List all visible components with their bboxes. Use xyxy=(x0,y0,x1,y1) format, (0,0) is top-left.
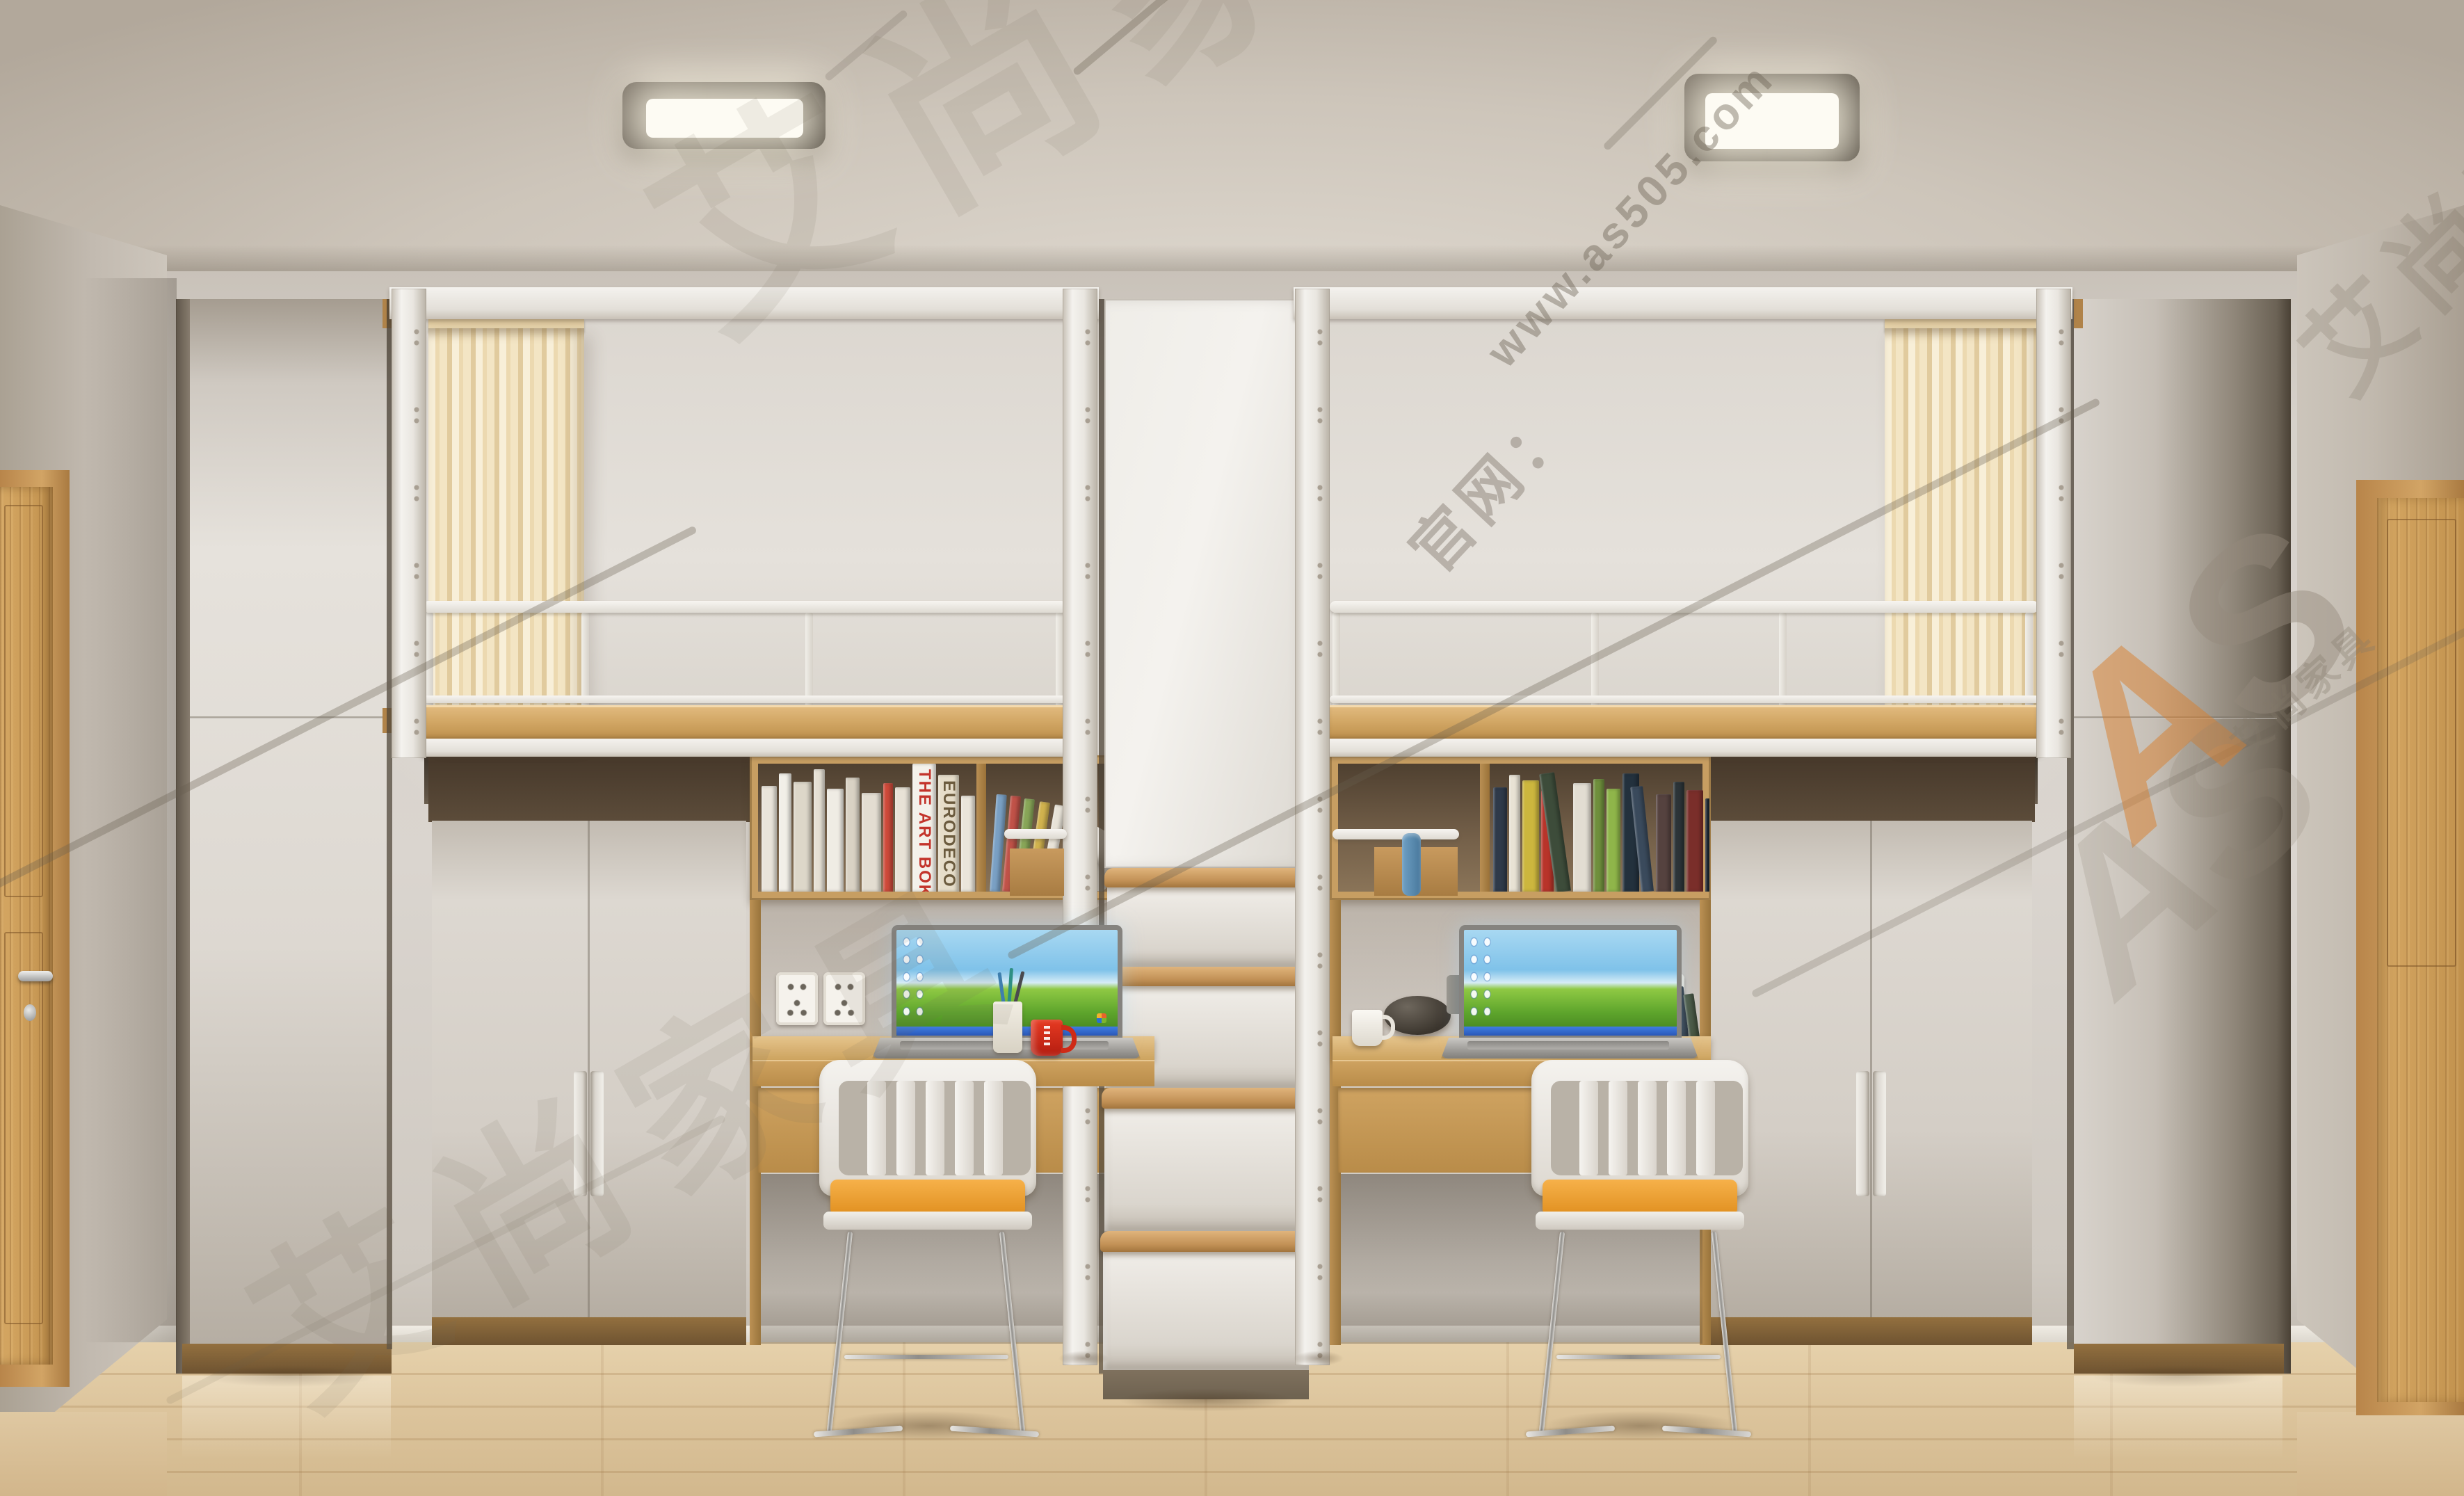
hutch-divider xyxy=(1480,764,1490,892)
gap xyxy=(1099,299,1104,1374)
book-spine xyxy=(1522,780,1539,892)
right-bookshelf-main xyxy=(1490,764,1709,892)
right-bed-post-outer xyxy=(2036,289,2071,758)
right-bed-curtain xyxy=(1885,328,2040,740)
ladder-step-nosing xyxy=(1104,868,1307,887)
door-panel-groove xyxy=(2387,519,2456,967)
pen-cup xyxy=(993,1002,1022,1053)
chair-seat-edge xyxy=(1536,1212,1744,1230)
light-panel xyxy=(646,99,803,138)
hutch-divider xyxy=(976,764,986,892)
wallpaper-logo xyxy=(1097,1013,1106,1023)
chair-slat xyxy=(955,1081,974,1175)
book-spine xyxy=(1573,783,1591,892)
left-bed-top-beam xyxy=(389,287,1099,319)
wardrobe-door-seam xyxy=(588,821,590,1319)
right-bed-guardrail-bottom xyxy=(1330,695,2039,703)
chair-seat-edge xyxy=(823,1212,1032,1230)
left-bed-curtain xyxy=(428,328,584,740)
right-bed-end-rail xyxy=(1332,829,1459,839)
wardrobe-handle xyxy=(1856,1071,1869,1196)
power-outlet xyxy=(823,972,865,1025)
book-spine xyxy=(895,787,910,892)
book-spine xyxy=(1593,779,1604,892)
wardrobe-door-seam xyxy=(2074,716,2277,718)
ceiling-light-right xyxy=(1684,74,1860,161)
right-bed-top-beam xyxy=(1294,287,2072,319)
laptop-screen xyxy=(1459,925,1682,1043)
wardrobe-handle xyxy=(1873,1071,1886,1196)
right-underbed-wardrobe xyxy=(1711,821,2032,1319)
chair-sled-foot xyxy=(1662,1426,1751,1438)
rail-post xyxy=(581,612,589,709)
chair-slat xyxy=(1667,1081,1686,1175)
dorm-room-render: THE ART BOKEURODECO xyxy=(0,0,2464,1496)
left-bed-fascia xyxy=(421,705,1067,741)
shadow xyxy=(1284,1348,1353,1369)
white-mug xyxy=(1352,1010,1383,1046)
left-underbed-header xyxy=(428,755,750,822)
ladder-step-front xyxy=(1103,1252,1309,1370)
rail-post xyxy=(1779,612,1787,709)
chair-leg xyxy=(999,1231,1025,1432)
left-tall-wardrobe xyxy=(190,299,392,1344)
floor-reflection xyxy=(182,1376,391,1459)
left-underbed-plinth xyxy=(432,1317,746,1345)
blue-roll xyxy=(1402,833,1421,896)
shadow xyxy=(1085,1384,1328,1416)
left-bed-guardrail-bottom xyxy=(423,695,1067,703)
book-spine: THE ART BOK xyxy=(912,764,936,892)
ceiling-wall-shadow xyxy=(0,245,2464,273)
right-tall-wardrobe xyxy=(2074,299,2277,1344)
chair-leg xyxy=(1712,1231,1737,1432)
wall-shadow xyxy=(83,278,177,1342)
wardrobe-handle xyxy=(590,1071,604,1196)
right-tall-wardrobe-side xyxy=(2277,299,2291,1374)
left-bookshelf-main: THE ART BOKEURODECO xyxy=(758,764,985,892)
chair xyxy=(1520,1060,1757,1439)
chair-slat xyxy=(984,1081,1003,1175)
red-mug xyxy=(1031,1020,1063,1056)
rail-post xyxy=(1591,612,1599,709)
chair-slat xyxy=(1638,1081,1657,1175)
right-underbed-plinth xyxy=(1711,1317,2032,1345)
left-bed-end-board xyxy=(1010,848,1064,896)
book-spine xyxy=(862,793,881,892)
wardrobe-handle xyxy=(574,1071,587,1196)
chair-leg xyxy=(1539,1231,1565,1432)
laptop-taskbar xyxy=(1464,1027,1677,1036)
book-spine xyxy=(814,769,825,892)
book-spine xyxy=(1607,789,1620,892)
book-spine xyxy=(794,782,812,892)
ceiling xyxy=(0,0,2464,273)
chair-slat xyxy=(867,1081,886,1175)
right-bed-fascia xyxy=(1327,705,2039,741)
desktop-icons xyxy=(900,933,928,1015)
book-spine xyxy=(846,778,860,892)
ceiling-light-left xyxy=(622,82,826,149)
chair-slat xyxy=(1579,1081,1598,1175)
book-spine xyxy=(827,789,844,892)
left-wall-floor xyxy=(0,1412,167,1496)
chair-slat xyxy=(926,1081,944,1175)
chair-slat xyxy=(1609,1081,1627,1175)
ladder-step-front xyxy=(1104,1109,1307,1231)
chair xyxy=(808,1060,1045,1439)
rail-post xyxy=(1332,612,1340,709)
chair-cushion xyxy=(1543,1180,1737,1216)
book-spine xyxy=(1493,787,1507,892)
ladder-step-nosing xyxy=(1100,1231,1312,1252)
desktop-icons xyxy=(1467,933,1495,1015)
right-wall-floor xyxy=(2297,1412,2464,1496)
chair-slat xyxy=(896,1081,915,1175)
chair-slat xyxy=(1696,1081,1715,1175)
right-bed-deck-beam xyxy=(1327,739,2039,757)
rail-post xyxy=(426,612,433,709)
laptop-base xyxy=(1441,1038,1698,1059)
ladder-step-nosing xyxy=(1103,967,1309,986)
floor-reflection xyxy=(2074,1376,2282,1459)
chair-leg xyxy=(827,1231,853,1432)
left-bed-post-outer xyxy=(392,289,426,758)
book-spine xyxy=(1509,775,1520,892)
rail-post xyxy=(2025,612,2033,709)
wardrobe-door-seam xyxy=(1870,821,1872,1319)
left-bed-guardrail-top xyxy=(423,601,1067,613)
book-title: EURODECO xyxy=(939,780,958,888)
ladder-step-front xyxy=(1107,887,1305,967)
left-door xyxy=(0,487,53,1365)
chair-cross-rail xyxy=(844,1355,1008,1359)
book-spine xyxy=(762,786,777,892)
chair-backrest xyxy=(819,1060,1036,1196)
left-door-handle xyxy=(18,971,53,981)
laptop-keyboard xyxy=(1467,1041,1669,1049)
chair-back-slats xyxy=(1551,1081,1743,1175)
shadow xyxy=(1049,1348,1118,1369)
book-spine xyxy=(1656,794,1671,892)
chair-sled-foot xyxy=(950,1426,1039,1438)
chair-cushion xyxy=(830,1180,1025,1216)
right-bed-guardrail-top xyxy=(1330,601,2039,613)
book-spine: EURODECO xyxy=(938,775,959,892)
left-bed-deck-beam xyxy=(421,739,1067,757)
chair-backrest xyxy=(1531,1060,1748,1196)
power-outlet xyxy=(776,972,818,1025)
right-bed-post-inner xyxy=(1295,289,1330,1365)
light-panel xyxy=(1705,93,1839,149)
book-spine xyxy=(961,796,975,892)
ladder-upper-cabinet xyxy=(1104,299,1307,868)
left-bed-post-inner xyxy=(1063,289,1097,1365)
chair-back-slats xyxy=(839,1081,1031,1175)
wood-accent xyxy=(2074,299,2083,328)
right-door xyxy=(2377,498,2464,1402)
right-underbed-header xyxy=(1711,755,2035,822)
door-panel-groove xyxy=(4,932,43,1324)
ladder-step-nosing xyxy=(1102,1088,1310,1109)
left-underbed-wardrobe xyxy=(432,821,746,1319)
left-tall-wardrobe-side xyxy=(176,299,190,1374)
rail-post xyxy=(805,612,813,709)
book-title: THE ART BOK xyxy=(915,769,934,892)
book-spine xyxy=(1705,798,1709,892)
book-spine xyxy=(779,773,791,892)
book-spine xyxy=(1673,782,1684,892)
book-spine xyxy=(883,783,893,892)
wardrobe-door-seam xyxy=(190,716,392,718)
left-door-lock xyxy=(24,1004,36,1021)
left-bed-end-rail xyxy=(1004,829,1067,839)
chair-cross-rail xyxy=(1556,1355,1721,1359)
door-panel-groove xyxy=(4,505,43,897)
book-spine xyxy=(1686,790,1703,892)
